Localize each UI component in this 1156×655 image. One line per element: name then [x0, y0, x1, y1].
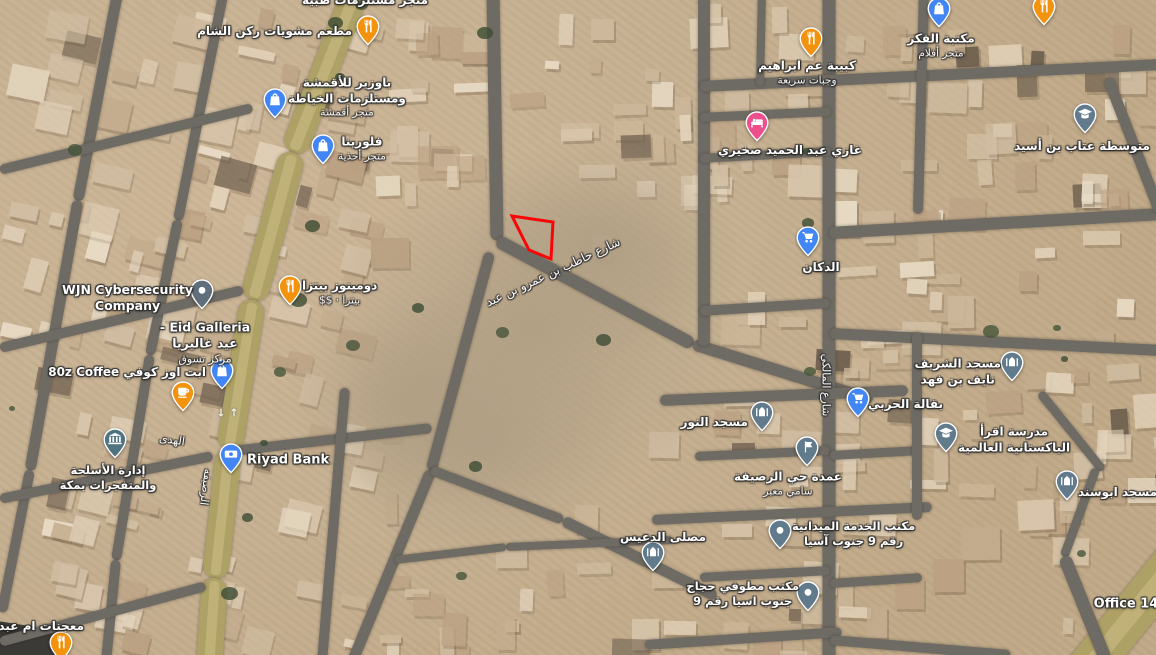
coffee-icon: [171, 381, 195, 412]
office-14-label[interactable]: Office 14: [1094, 597, 1156, 614]
kubayba-am-ibrahim-label[interactable]: كبيبة عم ابراهيموجبات سريعة: [758, 58, 856, 87]
poi-label-line: مصلى الدعيس: [620, 530, 706, 546]
building: [712, 164, 728, 185]
building: [960, 527, 1000, 561]
building: [977, 160, 993, 186]
building: [78, 202, 119, 242]
poi-category-label: مركز تسوق: [160, 352, 250, 366]
restaurant-icon: [1032, 0, 1056, 26]
florina-shoes-pin[interactable]: [311, 134, 335, 165]
building: [441, 612, 467, 646]
riyad-bank-label[interactable]: Riyad Bank: [247, 453, 329, 470]
building: [497, 616, 516, 650]
dominos-pizza-pin[interactable]: [278, 275, 302, 306]
building: [867, 606, 887, 637]
poi-label-line: مدرسة اقرأ: [958, 424, 1070, 440]
poi-label-line: مطعم مشويات ركن الشام: [197, 24, 352, 40]
bank-icon: [219, 443, 243, 474]
bag-icon: [927, 0, 951, 28]
building: [1106, 363, 1139, 381]
baqalat-alharbi-label[interactable]: بقالة الحربي: [868, 397, 943, 413]
tree: [1053, 325, 1060, 331]
poi-label-line: عمدة حي الرصيفة: [734, 469, 842, 485]
building: [591, 19, 614, 40]
poi-category-label: وجبات سريعة: [758, 74, 856, 88]
poi-category-label: سامي معبر: [734, 485, 842, 499]
building: [772, 7, 788, 34]
eid-galleria-label[interactable]: Eid Galleria -عيد غاليريامركز تسوق: [160, 320, 250, 367]
building: [1138, 109, 1156, 126]
poi-label-line: رقم 9 جنوب آسيا: [792, 534, 915, 549]
poi-label-line: Eid Galleria -: [160, 320, 250, 336]
maktabat-alfikr-pin[interactable]: [927, 0, 951, 28]
muajjanat-um-abd-label[interactable]: معجنات ام عبد ال: [0, 619, 84, 635]
poi-label-line: WJN Cybersecurity: [62, 282, 193, 298]
poi-label-line: معجنات ام عبد ال: [0, 619, 84, 635]
building: [49, 211, 65, 227]
masjid-alsharif-nayif-pin[interactable]: [1000, 351, 1024, 382]
mosque-icon: [1000, 351, 1024, 382]
building: [520, 588, 533, 611]
tree: [496, 327, 509, 338]
musalla-alduais-label[interactable]: مصلى الدعيس: [620, 530, 706, 546]
building: [1062, 618, 1073, 635]
building: [933, 559, 964, 592]
building: [546, 569, 563, 596]
ghazi-sakhiri-pin[interactable]: [745, 111, 769, 142]
restaurant-icon: [356, 15, 380, 46]
building: [959, 483, 995, 498]
poi-label-line: فلورينا: [338, 134, 386, 150]
flag-icon: [795, 436, 819, 467]
poi-label-line: متوسطة عتاب بن أسيد: [1014, 139, 1150, 155]
building: [1014, 162, 1035, 190]
building: [644, 69, 658, 82]
tree: [983, 325, 999, 338]
poi-category-label: متجر أحذية: [338, 150, 386, 164]
building: [844, 368, 858, 378]
building: [559, 14, 574, 45]
florina-shoes-label[interactable]: فلورينامتجر أحذية: [338, 134, 386, 163]
cart-icon: [846, 387, 870, 418]
80z-coffee-label[interactable]: 80z Coffee ابت اوز كوفي: [48, 365, 206, 381]
masjid-alnoor-pin[interactable]: [750, 401, 774, 432]
building: [780, 650, 807, 655]
building: [561, 128, 592, 141]
building: [45, 9, 89, 44]
building: [906, 278, 927, 295]
building: [928, 82, 968, 113]
mutawwifi-hajjaj-office-9-pin[interactable]: [796, 581, 820, 612]
masjid-alnoor-label[interactable]: مسجد النور: [681, 415, 748, 431]
poi-label-line: Riyad Bank: [247, 453, 329, 470]
restaurant-icon: [799, 27, 823, 58]
building: [510, 92, 545, 108]
tree: [412, 303, 425, 313]
building: [1113, 25, 1131, 54]
building: [1035, 248, 1055, 259]
cart-icon: [796, 226, 820, 257]
building: [1082, 403, 1093, 423]
idarat-alasliha-label[interactable]: إدارة الأسلحةوالمتفجرات بمكة: [60, 463, 157, 493]
tree: [274, 367, 287, 377]
poi-label-line: كبيبة عم ابراهيم: [758, 58, 856, 74]
building: [985, 122, 1017, 155]
bag-icon: [311, 134, 335, 165]
poi-label-line: 80z Coffee ابت اوز كوفي: [48, 365, 206, 381]
poi-label-line: متجر مستلزمات طبية: [302, 0, 428, 9]
tree: [456, 572, 467, 581]
building: [139, 59, 158, 84]
poi-category-label: متجر أفلام: [907, 47, 974, 61]
government-icon: [103, 428, 127, 459]
building: [968, 80, 982, 107]
satellite-map-canvas[interactable]: شارع حاطب بن عمرو بن عبدشارع المالكيالرص…: [0, 0, 1156, 655]
ghazi-sakhiri-label[interactable]: غازي عبد الحميد صخيري: [718, 143, 862, 159]
building: [188, 557, 204, 574]
building: [410, 80, 428, 92]
building: [241, 626, 275, 655]
mosque-icon: [1055, 470, 1079, 501]
building: [454, 82, 493, 93]
idarat-alasliha-pin[interactable]: [103, 428, 127, 459]
building: [843, 457, 857, 490]
poi-label-line: الدكان: [802, 260, 839, 276]
attab-bin-usaid-school-label[interactable]: متوسطة عتاب بن أسيد: [1014, 139, 1150, 155]
aldukkan-label[interactable]: الدكان: [802, 260, 839, 276]
school-icon: [1073, 103, 1097, 134]
building: [412, 594, 444, 617]
poi-label-line: مكتبة الفكر: [907, 31, 974, 47]
dirt-ground: [290, 290, 550, 510]
tree: [596, 334, 611, 346]
masjid-abusind-pin[interactable]: [1055, 470, 1079, 501]
dot-icon: [768, 519, 792, 550]
poi-label-line: مسجد النور: [681, 415, 748, 431]
building: [110, 67, 137, 86]
building: [1071, 369, 1088, 384]
building: [948, 296, 974, 329]
poi-category-label: بيتزا · $$: [302, 294, 377, 308]
tree: [221, 587, 238, 600]
poi-label-line: بقالة الحربي: [868, 397, 943, 413]
field-service-office-9-label[interactable]: مكتب الخدمة الميدانيةرقم 9 جنوب آسيا: [792, 519, 915, 549]
lane-arrow: ↑: [229, 407, 238, 420]
lane-arrow: ↓: [216, 407, 225, 420]
poi-label-line: نايف بن فهد: [915, 372, 1002, 388]
building: [237, 45, 275, 61]
building: [1117, 299, 1134, 318]
building: [91, 162, 133, 190]
80z-coffee-pin[interactable]: [171, 381, 195, 412]
iqra-pakistani-school-pin[interactable]: [934, 422, 958, 453]
poi-category-label: متجر أقمشة: [288, 107, 406, 121]
kubayba-am-ibrahim-pin[interactable]: [799, 27, 823, 58]
building: [120, 629, 150, 655]
tree: [1061, 356, 1068, 361]
building: [6, 64, 50, 103]
wjn-cybersecurity-label[interactable]: WJN CybersecurityCompany: [62, 282, 193, 315]
school-icon: [934, 422, 958, 453]
dot-icon: [796, 581, 820, 612]
building: [963, 410, 977, 420]
building: [545, 60, 560, 69]
poi-label-line: مكتب الخدمة الميدانية: [792, 519, 915, 534]
building: [722, 524, 752, 537]
building: [76, 412, 92, 436]
building: [2, 225, 26, 244]
building: [985, 390, 1022, 415]
building: [34, 100, 72, 135]
attab-bin-usaid-school-pin[interactable]: [1073, 103, 1097, 134]
building: [680, 115, 692, 142]
dominos-pizza-label[interactable]: دومينوز بيتزابيتزا · $$: [302, 278, 377, 307]
riyad-bank-pin[interactable]: [219, 443, 243, 474]
hotel-icon: [745, 111, 769, 142]
building: [23, 257, 49, 292]
poi-label-line: مسجد الشريف: [915, 356, 1002, 372]
street: [698, 0, 710, 346]
building: [1023, 463, 1037, 488]
poi-label-line: Company: [62, 298, 193, 314]
building: [9, 201, 40, 221]
tree: [242, 513, 253, 522]
building: [1082, 181, 1093, 204]
bawazir-fabrics-pin[interactable]: [263, 88, 287, 119]
building: [918, 231, 934, 258]
field-service-office-9-pin[interactable]: [768, 519, 792, 550]
medical-supplies-store-label[interactable]: متجر مستلزمات طبية: [302, 0, 428, 9]
poi-label-line: مسجد ابوسند: [1078, 485, 1156, 501]
poi-label-line: Office 14: [1094, 597, 1156, 614]
mashwiyat-rukn-alsham-pin[interactable]: [356, 15, 380, 46]
building: [1103, 430, 1125, 453]
mutawwifi-hajjaj-office-9-label[interactable]: مكتب مطوفي حجاججنوب اسيا رقم 9: [686, 579, 799, 609]
poi-label-line: جنوب اسيا رقم 9: [686, 594, 799, 609]
omda-alrusayfah-label[interactable]: عمدة حي الرصيفةسامي معبر: [734, 469, 842, 498]
poi-label-line: مكتب مطوفي حجاج: [686, 579, 799, 594]
building: [209, 185, 229, 210]
road-center-stripe: [204, 581, 220, 655]
tree: [477, 27, 492, 39]
mosque-icon: [750, 401, 774, 432]
poi-label-line: الباكستانية العالمية: [958, 440, 1070, 456]
unnamed-restaurant-pin[interactable]: [1032, 0, 1056, 26]
building: [295, 185, 312, 209]
building: [340, 594, 368, 609]
building: [577, 562, 611, 574]
building: [664, 621, 696, 636]
building: [651, 81, 673, 107]
building: [1083, 231, 1120, 245]
restaurant-icon: [278, 275, 302, 306]
dot-icon: [190, 279, 214, 310]
building: [837, 266, 876, 277]
maktabat-alfikr-label[interactable]: مكتبة الفكرمتجر أفلام: [907, 31, 974, 60]
building: [1019, 271, 1037, 292]
poi-label-line: والمتفجرات بمكة: [60, 478, 157, 493]
masjid-alsharif-nayif-label[interactable]: مسجد الشريفنايف بن فهد: [915, 356, 1002, 387]
building: [376, 175, 400, 195]
poi-label-line: دومينوز بيتزا: [302, 278, 377, 294]
malki-street-label[interactable]: شارع المالكي: [820, 354, 833, 417]
bag-icon: [263, 88, 287, 119]
masjid-abusind-label[interactable]: مسجد ابوسند: [1078, 485, 1156, 501]
building: [929, 292, 942, 310]
building: [590, 58, 602, 73]
baqalat-alharbi-pin[interactable]: [846, 387, 870, 418]
building: [899, 261, 934, 278]
building: [278, 508, 311, 538]
poi-label-line: باوزير للأقمشة: [288, 76, 406, 92]
building: [50, 561, 79, 586]
building: [779, 317, 806, 327]
poi-label-line: ومستلزمات الخياطة: [288, 91, 406, 107]
building: [787, 165, 823, 198]
building: [1133, 393, 1156, 428]
mashwiyat-rukn-alsham-label[interactable]: مطعم مشويات ركن الشام: [197, 24, 352, 40]
building: [846, 36, 865, 53]
building: [396, 19, 426, 40]
omda-alrusayfah-pin[interactable]: [795, 436, 819, 467]
tree: [9, 406, 15, 411]
wjn-cybersecurity-pin[interactable]: [190, 279, 214, 310]
tree: [1077, 550, 1086, 557]
building: [874, 348, 912, 370]
building: [380, 634, 402, 643]
tree: [260, 440, 267, 446]
building: [613, 104, 647, 116]
street: [830, 635, 1011, 655]
poi-label-line: عيد غاليريا: [160, 336, 250, 352]
building: [1017, 499, 1054, 530]
poi-label-line: إدارة الأسلحة: [60, 463, 157, 478]
bawazir-fabrics-label[interactable]: باوزير للأقمشةومستلزمات الخياطةمتجر أقمش…: [288, 76, 406, 121]
poi-label-line: غازي عبد الحميد صخيري: [718, 143, 862, 159]
iqra-pakistani-school-label[interactable]: مدرسة اقرأالباكستانية العالمية: [958, 424, 1070, 455]
aldukkan-pin[interactable]: [796, 226, 820, 257]
